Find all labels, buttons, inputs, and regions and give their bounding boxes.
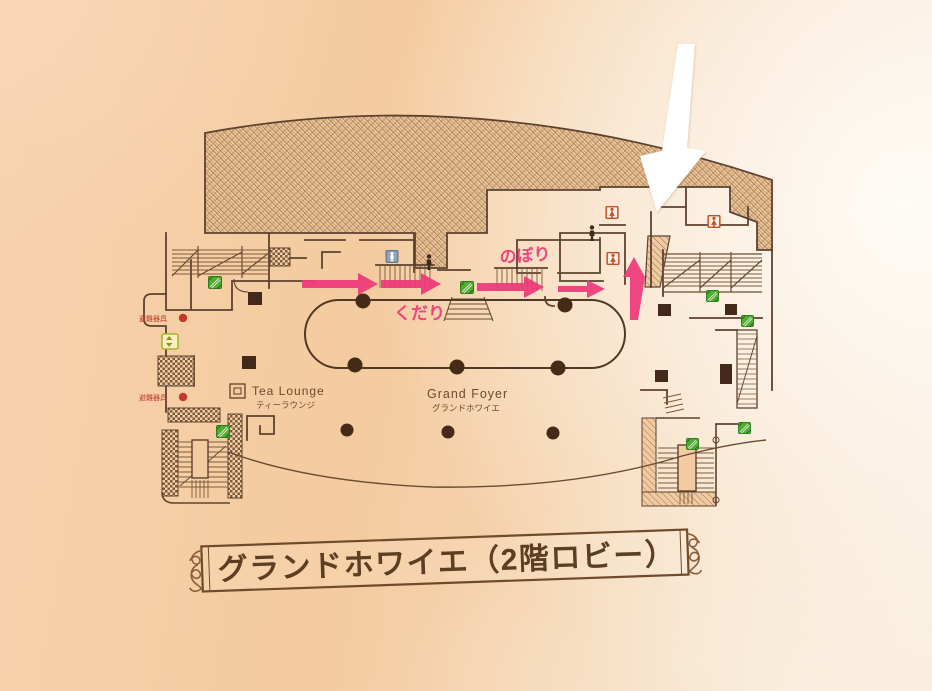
route-arrow-right: [477, 276, 544, 298]
evac-label: 避難器具: [139, 393, 167, 402]
evac-label: 避難器具: [139, 314, 167, 323]
escalator-icon: [707, 290, 719, 301]
column: [442, 426, 455, 439]
escalator-icon: [209, 277, 222, 289]
route-down-label: くだり: [394, 304, 445, 323]
escalator-icon: [742, 315, 754, 326]
staircase-left-wing: [172, 246, 290, 278]
escalator-icon: [461, 282, 474, 294]
escalator-icon: [687, 438, 699, 449]
person-icon: [589, 225, 594, 241]
bottom-left-room-walls: [247, 416, 274, 440]
atrium-oval: [305, 294, 625, 440]
column: [547, 427, 560, 440]
staircase-bottom-right: [642, 418, 719, 506]
womens-restroom-icon: [708, 216, 720, 228]
pillars: [242, 292, 737, 384]
route-up-label: のぼり: [499, 244, 551, 267]
evac-dot-icon: [179, 393, 187, 401]
room-labels: Tea Lounge ティーラウンジ Grand Foyer グランドホワイエ: [252, 384, 508, 413]
title-banner: グランドホワイエ（2階ロビー）: [188, 529, 701, 592]
mens-restroom-icon: [386, 251, 398, 263]
escalator-icon: [217, 426, 230, 438]
columns: [341, 294, 573, 440]
column: [356, 294, 371, 309]
column: [558, 298, 573, 313]
womens-restroom-icon: [606, 207, 618, 219]
pillar: [658, 304, 671, 316]
floor-map-photo: 避難器具 避難器具 Tea Lounge ティーラウンジ Grand Foyer…: [0, 0, 932, 691]
pillar: [720, 364, 732, 384]
pillar: [655, 370, 668, 382]
pillar: [242, 356, 256, 369]
womens-restroom-icon: [607, 253, 619, 265]
hatched-wedge: [645, 236, 670, 287]
pillar: [248, 292, 262, 305]
column: [551, 361, 566, 376]
grand-foyer-label-en: Grand Foyer: [427, 387, 508, 401]
column: [341, 424, 354, 437]
column: [348, 358, 363, 373]
route-arrow-right: [302, 273, 378, 295]
route-arrow-right: [558, 280, 605, 298]
column: [450, 360, 465, 375]
grand-foyer-label-jp: グランドホワイエ: [432, 403, 500, 413]
staircase-right-narrow: [737, 330, 757, 408]
tea-lounge-icon: [230, 384, 245, 398]
escalator-icon: [739, 422, 751, 433]
staircase-right-wide: [663, 252, 762, 292]
staircase-bottom-left: [162, 408, 242, 503]
tea-lounge-label-jp: ティーラウンジ: [256, 400, 315, 410]
evac-dot-icon: [179, 314, 187, 322]
pillar: [725, 304, 737, 315]
hatched-wall-block: [158, 356, 194, 386]
tea-lounge-label-en: Tea Lounge: [252, 384, 325, 398]
route-arrow-up: [623, 257, 645, 320]
elevator-icon: [162, 334, 178, 349]
floor-plan: 避難器具 避難器具 Tea Lounge ティーラウンジ Grand Foyer…: [0, 0, 932, 691]
